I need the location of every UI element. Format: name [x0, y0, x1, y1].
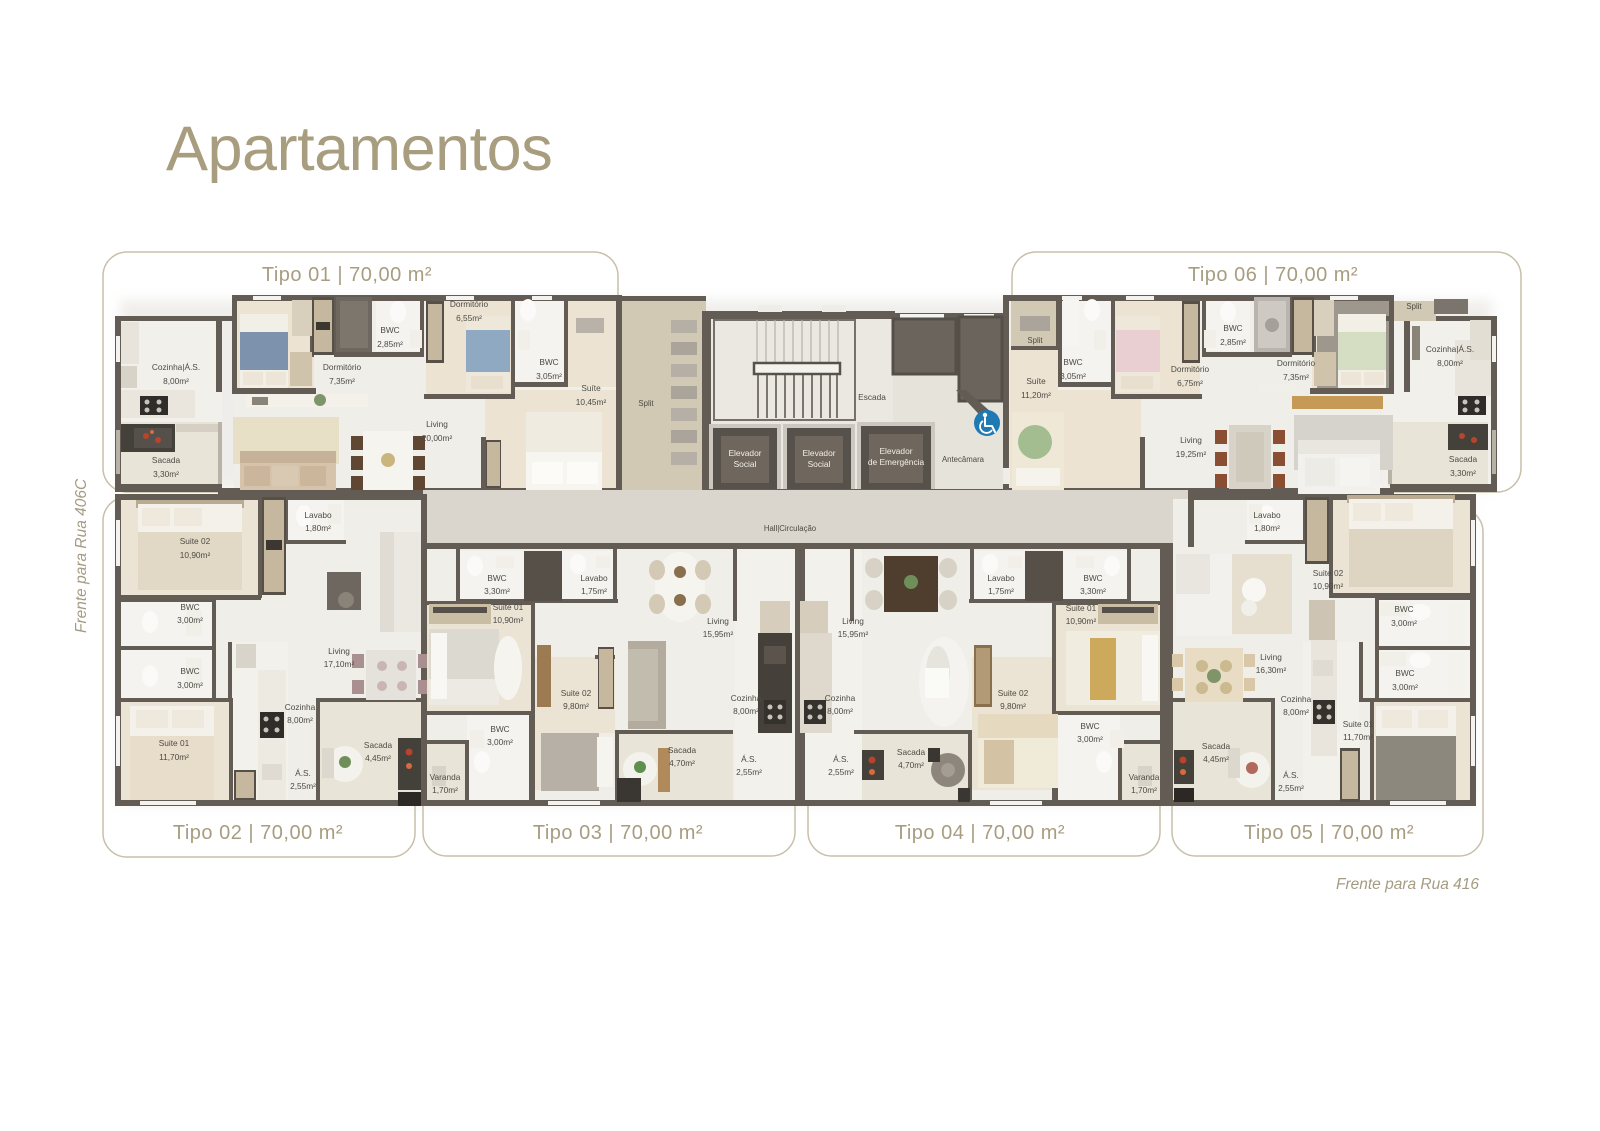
- svg-text:Cozinha|Á.S.: Cozinha|Á.S.: [1426, 344, 1474, 354]
- svg-text:17,10m²: 17,10m²: [324, 659, 355, 669]
- svg-text:BWC: BWC: [490, 724, 509, 734]
- svg-text:3,00m²: 3,00m²: [487, 737, 513, 747]
- svg-text:2,85m²: 2,85m²: [1220, 337, 1246, 347]
- svg-text:2,55m²: 2,55m²: [290, 781, 316, 791]
- svg-text:Sacada: Sacada: [152, 455, 181, 465]
- svg-text:Varanda: Varanda: [430, 772, 461, 782]
- svg-text:BWC: BWC: [487, 573, 506, 583]
- svg-text:BWC: BWC: [1394, 604, 1413, 614]
- svg-text:11,20m²: 11,20m²: [1021, 390, 1051, 400]
- svg-text:Tipo 06 | 70,00 m²: Tipo 06 | 70,00 m²: [1188, 264, 1358, 286]
- svg-text:Cozinha: Cozinha: [825, 693, 856, 703]
- svg-text:Cozinha: Cozinha: [731, 693, 762, 703]
- svg-text:Antecâmara: Antecâmara: [942, 455, 985, 464]
- svg-text:Apartamentos: Apartamentos: [166, 114, 552, 184]
- svg-text:Sacada: Sacada: [1449, 454, 1478, 464]
- svg-text:10,90m²: 10,90m²: [1066, 616, 1097, 626]
- svg-text:Dormitório: Dormitório: [1277, 358, 1316, 368]
- svg-text:3,00m²: 3,00m²: [1392, 682, 1418, 692]
- svg-text:7,35m²: 7,35m²: [1283, 372, 1309, 382]
- svg-text:Cozinha: Cozinha: [1281, 694, 1312, 704]
- svg-text:Living: Living: [1180, 435, 1202, 445]
- svg-text:BWC: BWC: [539, 357, 558, 367]
- svg-text:Suíte: Suíte: [1026, 376, 1046, 386]
- svg-text:Á.S.: Á.S.: [741, 754, 757, 764]
- svg-text:11,70m²: 11,70m²: [1343, 732, 1373, 742]
- svg-text:Suíte: Suíte: [581, 383, 601, 393]
- svg-text:4,45m²: 4,45m²: [365, 753, 391, 763]
- svg-text:Suite 01: Suite 01: [1066, 603, 1097, 613]
- svg-text:8,00m²: 8,00m²: [1437, 358, 1463, 368]
- svg-text:Tipo 02 | 70,00 m²: Tipo 02 | 70,00 m²: [173, 822, 343, 844]
- svg-text:Sacada: Sacada: [897, 747, 926, 757]
- svg-text:Living: Living: [426, 419, 448, 429]
- svg-text:2,85m²: 2,85m²: [377, 339, 403, 349]
- svg-text:Living: Living: [842, 616, 864, 626]
- svg-text:Suite 01: Suite 01: [159, 738, 190, 748]
- svg-text:16,30m²: 16,30m²: [1256, 665, 1287, 675]
- svg-text:Á.S.: Á.S.: [833, 754, 849, 764]
- svg-text:Escada: Escada: [858, 392, 886, 402]
- svg-text:Suite 01: Suite 01: [1343, 719, 1374, 729]
- svg-text:1,75m²: 1,75m²: [988, 586, 1014, 596]
- svg-text:Á.S.: Á.S.: [295, 768, 311, 778]
- svg-text:Elevador: Elevador: [879, 446, 912, 456]
- svg-text:Suite 02: Suite 02: [998, 688, 1029, 698]
- svg-text:4,45m²: 4,45m²: [1203, 754, 1229, 764]
- svg-text:Lavabo: Lavabo: [304, 510, 332, 520]
- svg-text:BWC: BWC: [180, 602, 199, 612]
- svg-text:3,30m²: 3,30m²: [1080, 586, 1106, 596]
- svg-text:1,70m²: 1,70m²: [432, 785, 458, 795]
- svg-text:3,30m²: 3,30m²: [1450, 468, 1476, 478]
- svg-text:Tipo 01 | 70,00 m²: Tipo 01 | 70,00 m²: [262, 264, 432, 286]
- svg-text:8,00m²: 8,00m²: [827, 706, 853, 716]
- svg-text:Sacada: Sacada: [668, 745, 697, 755]
- svg-text:8,00m²: 8,00m²: [1283, 707, 1309, 717]
- svg-text:3,05m²: 3,05m²: [536, 371, 562, 381]
- svg-text:Frente para Rua 416: Frente para Rua 416: [1336, 876, 1479, 893]
- svg-text:Dormitório: Dormitório: [450, 299, 489, 309]
- svg-text:3,00m²: 3,00m²: [177, 615, 203, 625]
- svg-text:Social: Social: [808, 459, 831, 469]
- svg-text:Split: Split: [638, 399, 654, 408]
- svg-text:Living: Living: [1260, 652, 1282, 662]
- svg-text:Elevador: Elevador: [802, 448, 835, 458]
- svg-text:Dormitório: Dormitório: [1171, 364, 1210, 374]
- svg-text:Split: Split: [1406, 302, 1422, 311]
- svg-text:Living: Living: [328, 646, 350, 656]
- svg-text:Tipo 05 | 70,00 m²: Tipo 05 | 70,00 m²: [1244, 822, 1414, 844]
- svg-text:10,90m²: 10,90m²: [493, 615, 524, 625]
- svg-text:Suite 01: Suite 01: [493, 602, 524, 612]
- svg-text:Suite 02: Suite 02: [180, 536, 211, 546]
- svg-text:4,70m²: 4,70m²: [669, 758, 695, 768]
- svg-text:Tipo 04 | 70,00 m²: Tipo 04 | 70,00 m²: [895, 822, 1065, 844]
- svg-text:3,00m²: 3,00m²: [1391, 618, 1417, 628]
- svg-text:Á.S.: Á.S.: [1283, 770, 1299, 780]
- svg-text:BWC: BWC: [1395, 668, 1414, 678]
- svg-text:8,00m²: 8,00m²: [733, 706, 759, 716]
- svg-text:1,70m²: 1,70m²: [1131, 785, 1157, 795]
- svg-text:Sacada: Sacada: [1202, 741, 1231, 751]
- svg-text:Suite 02: Suite 02: [1313, 568, 1344, 578]
- svg-text:3,30m²: 3,30m²: [153, 469, 179, 479]
- svg-text:1,75m²: 1,75m²: [581, 586, 607, 596]
- svg-text:10,90m²: 10,90m²: [180, 550, 211, 560]
- svg-text:2,55m²: 2,55m²: [736, 767, 762, 777]
- svg-text:BWC: BWC: [1080, 721, 1099, 731]
- svg-text:4,70m²: 4,70m²: [898, 760, 924, 770]
- svg-text:BWC: BWC: [1223, 323, 1242, 333]
- svg-text:Lavabo: Lavabo: [987, 573, 1015, 583]
- svg-text:Split: Split: [1027, 336, 1043, 345]
- svg-text:20,00m²: 20,00m²: [422, 433, 453, 443]
- svg-text:19,25m²: 19,25m²: [1176, 449, 1207, 459]
- svg-text:6,75m²: 6,75m²: [1177, 378, 1203, 388]
- svg-text:BWC: BWC: [1083, 573, 1102, 583]
- svg-text:Hall|Circulação: Hall|Circulação: [764, 524, 817, 533]
- svg-text:Social: Social: [734, 459, 757, 469]
- svg-text:6,55m²: 6,55m²: [456, 313, 482, 323]
- svg-text:Suite 02: Suite 02: [561, 688, 592, 698]
- svg-text:8,00m²: 8,00m²: [163, 376, 189, 386]
- svg-text:Cozinha: Cozinha: [285, 702, 316, 712]
- svg-text:9,80m²: 9,80m²: [563, 701, 589, 711]
- svg-text:2,55m²: 2,55m²: [828, 767, 854, 777]
- svg-text:de Emergência: de Emergência: [868, 457, 925, 467]
- svg-text:Lavabo: Lavabo: [580, 573, 608, 583]
- svg-text:8,00m²: 8,00m²: [287, 715, 313, 725]
- svg-text:10,45m²: 10,45m²: [576, 397, 607, 407]
- svg-text:Living: Living: [707, 616, 729, 626]
- svg-text:BWC: BWC: [180, 666, 199, 676]
- svg-text:3,05m²: 3,05m²: [1060, 371, 1086, 381]
- svg-text:10,90m²: 10,90m²: [1313, 581, 1344, 591]
- svg-text:Lavabo: Lavabo: [1253, 510, 1281, 520]
- svg-text:2,55m²: 2,55m²: [1278, 783, 1304, 793]
- svg-text:Tipo 03 | 70,00 m²: Tipo 03 | 70,00 m²: [533, 822, 703, 844]
- svg-text:11,70m²: 11,70m²: [159, 752, 189, 762]
- svg-text:Sacada: Sacada: [364, 740, 393, 750]
- svg-text:7,35m²: 7,35m²: [329, 376, 355, 386]
- svg-text:1,80m²: 1,80m²: [305, 523, 331, 533]
- svg-text:Varanda: Varanda: [1129, 772, 1160, 782]
- svg-text:BWC: BWC: [380, 325, 399, 335]
- svg-text:1,80m²: 1,80m²: [1254, 523, 1280, 533]
- svg-text:3,30m²: 3,30m²: [484, 586, 510, 596]
- svg-text:Cozinha|Á.S.: Cozinha|Á.S.: [152, 362, 200, 372]
- svg-text:15,95m²: 15,95m²: [703, 629, 734, 639]
- svg-text:Elevador: Elevador: [728, 448, 761, 458]
- svg-text:15,95m²: 15,95m²: [838, 629, 869, 639]
- svg-text:BWC: BWC: [1063, 357, 1082, 367]
- svg-text:Dormitório: Dormitório: [323, 362, 362, 372]
- svg-text:3,00m²: 3,00m²: [1077, 734, 1103, 744]
- svg-text:3,00m²: 3,00m²: [177, 680, 203, 690]
- svg-text:9,80m²: 9,80m²: [1000, 701, 1026, 711]
- svg-text:Frente para Rua 406C: Frente para Rua 406C: [73, 478, 90, 633]
